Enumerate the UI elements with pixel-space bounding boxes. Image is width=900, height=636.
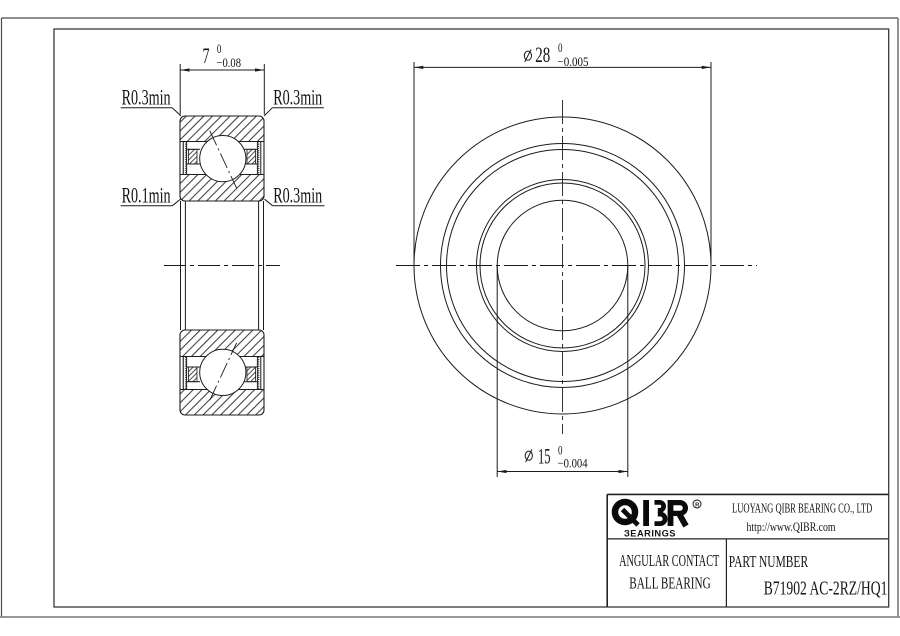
svg-text:−0.005: −0.005 — [558, 54, 589, 69]
svg-text:PART NUMBER: PART NUMBER — [729, 552, 809, 571]
svg-text:0: 0 — [558, 40, 563, 55]
svg-text:R0.3min: R0.3min — [273, 183, 322, 208]
svg-text:R0.1min: R0.1min — [122, 183, 171, 208]
svg-text:0: 0 — [217, 41, 222, 56]
svg-text:BALL BEARING: BALL BEARING — [629, 574, 710, 593]
svg-text:28: 28 — [535, 42, 550, 67]
svg-text:LUOYANG QIBR BEARING CO., LTD: LUOYANG QIBR BEARING CO., LTD — [732, 501, 872, 516]
svg-text:15: 15 — [538, 444, 551, 469]
svg-text:http://www.QIBR.com: http://www.QIBR.com — [747, 519, 836, 534]
svg-text:R0.3min: R0.3min — [273, 85, 322, 110]
svg-text:R0.3min: R0.3min — [122, 85, 171, 110]
svg-text:B71902 AC-2RZ/HQ1: B71902 AC-2RZ/HQ1 — [764, 578, 888, 600]
svg-text:−0.08: −0.08 — [217, 55, 242, 70]
svg-text:ANGULAR CONTACT: ANGULAR CONTACT — [619, 551, 720, 570]
svg-text:7: 7 — [203, 43, 210, 68]
svg-text:ЗEARINGS: ЗEARINGS — [624, 529, 676, 540]
svg-text:−0.004: −0.004 — [558, 455, 588, 470]
